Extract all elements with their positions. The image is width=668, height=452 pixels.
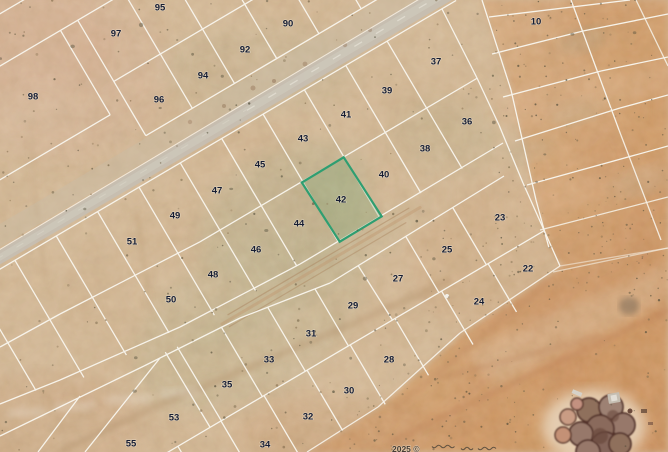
svg-text:46: 46 bbox=[251, 245, 262, 256]
svg-text:29: 29 bbox=[348, 301, 359, 312]
svg-text:31: 31 bbox=[306, 329, 317, 340]
svg-text:42: 42 bbox=[336, 195, 347, 206]
svg-text:30: 30 bbox=[344, 386, 355, 397]
svg-text:96: 96 bbox=[154, 95, 165, 106]
svg-text:92: 92 bbox=[240, 45, 251, 56]
svg-text:98: 98 bbox=[28, 92, 39, 103]
svg-text:32: 32 bbox=[303, 412, 314, 423]
svg-text:51: 51 bbox=[127, 237, 138, 248]
svg-text:47: 47 bbox=[212, 186, 223, 197]
svg-text:25: 25 bbox=[442, 245, 453, 256]
svg-text:33: 33 bbox=[264, 355, 275, 366]
svg-text:97: 97 bbox=[111, 29, 122, 40]
svg-text:37: 37 bbox=[431, 57, 442, 68]
svg-text:55: 55 bbox=[126, 439, 137, 450]
svg-text:34: 34 bbox=[260, 440, 271, 451]
svg-text:45: 45 bbox=[255, 160, 266, 171]
svg-text:10: 10 bbox=[531, 17, 542, 28]
svg-text:49: 49 bbox=[170, 211, 181, 222]
svg-text:50: 50 bbox=[166, 295, 177, 306]
svg-text:41: 41 bbox=[341, 110, 352, 121]
svg-text:95: 95 bbox=[155, 3, 166, 14]
svg-text:53: 53 bbox=[169, 413, 180, 424]
svg-text:35: 35 bbox=[222, 380, 233, 391]
svg-text:27: 27 bbox=[393, 274, 404, 285]
svg-text:44: 44 bbox=[294, 219, 305, 230]
svg-text:39: 39 bbox=[382, 86, 393, 97]
svg-text:43: 43 bbox=[298, 134, 309, 145]
svg-text:22: 22 bbox=[523, 264, 534, 275]
svg-text:38: 38 bbox=[420, 144, 431, 155]
svg-text:28: 28 bbox=[384, 355, 395, 366]
svg-text:36: 36 bbox=[462, 117, 473, 128]
svg-text:90: 90 bbox=[283, 19, 294, 30]
svg-text:48: 48 bbox=[208, 270, 219, 281]
svg-text:2025 ©: 2025 © bbox=[392, 444, 420, 452]
svg-text:23: 23 bbox=[495, 213, 506, 224]
svg-text:24: 24 bbox=[474, 297, 485, 308]
svg-text:40: 40 bbox=[379, 170, 390, 181]
svg-text:94: 94 bbox=[198, 71, 209, 82]
